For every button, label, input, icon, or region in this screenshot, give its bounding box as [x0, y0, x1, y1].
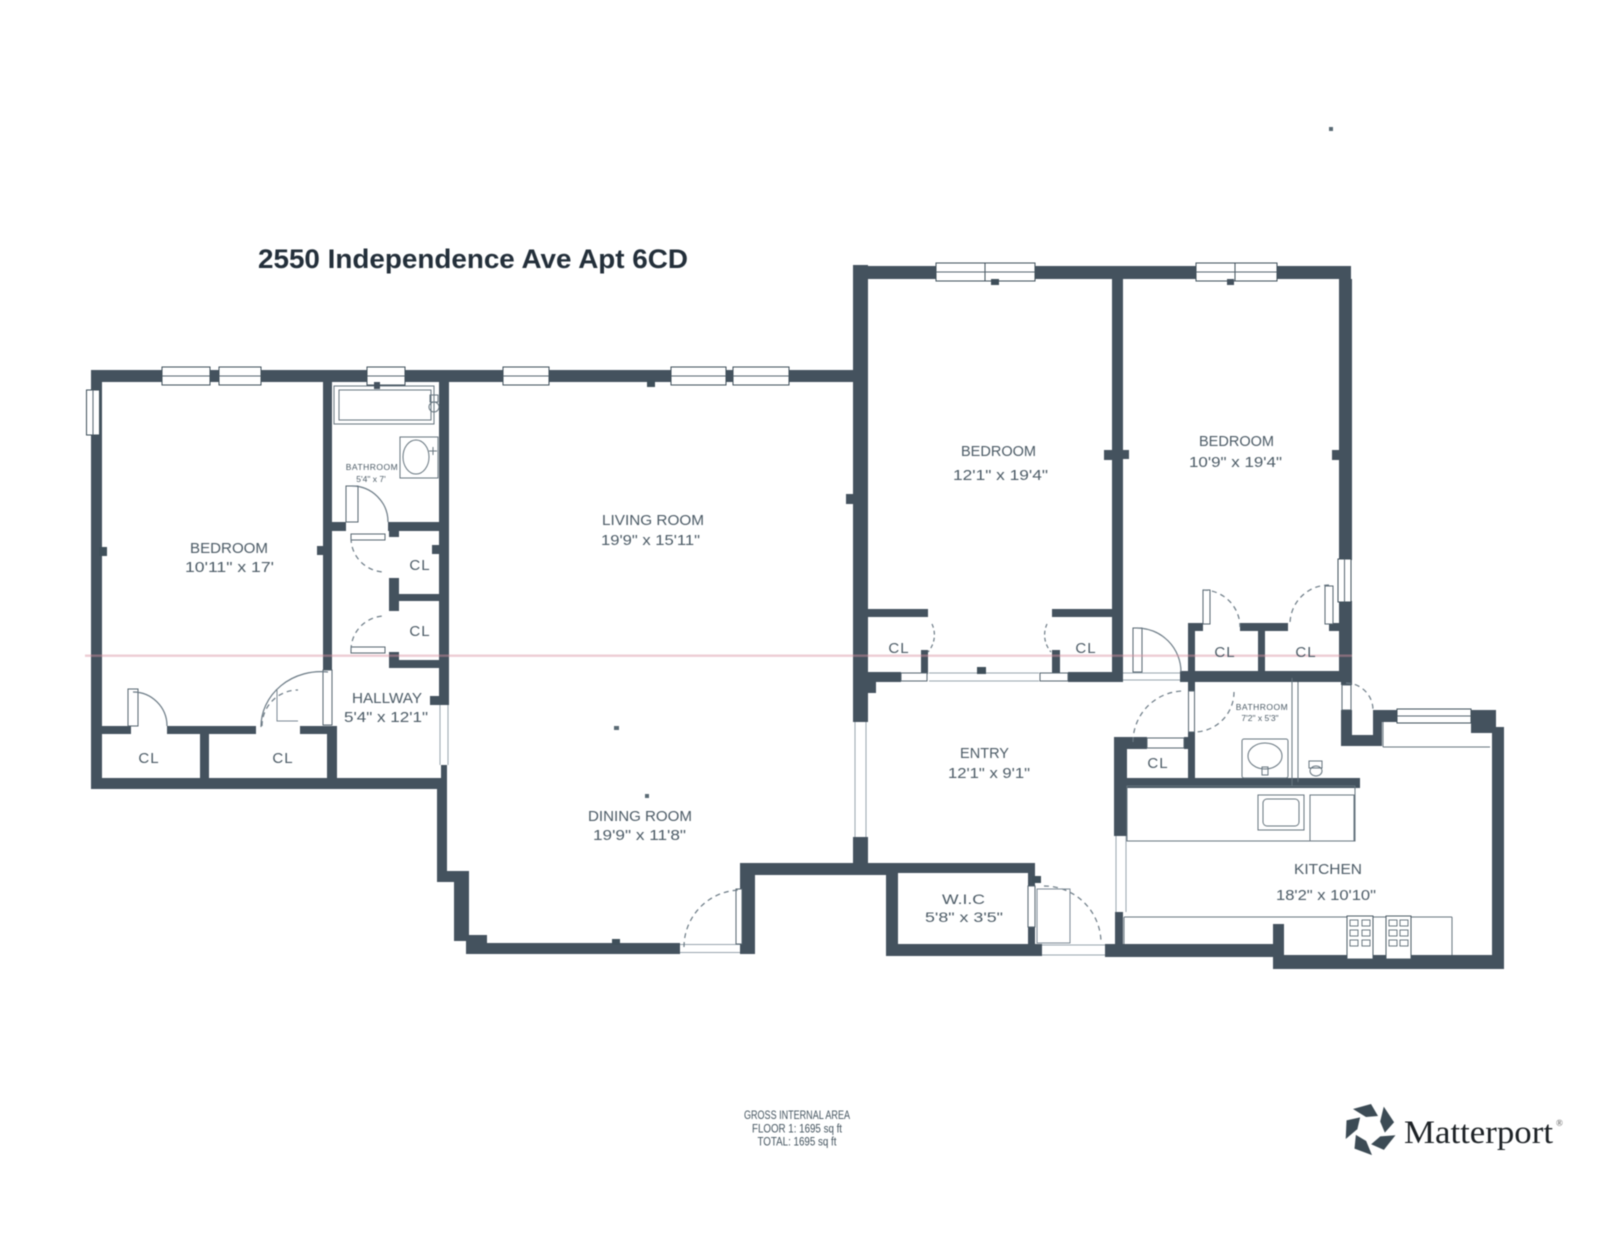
svg-text:CL: CL	[1295, 644, 1316, 661]
svg-text:CL: CL	[1075, 640, 1096, 657]
svg-text:BATHROOM: BATHROOM	[1236, 702, 1288, 712]
svg-text:W.I.C: W.I.C	[942, 891, 985, 907]
svg-text:BEDROOM: BEDROOM	[190, 541, 268, 557]
svg-text:LIVING ROOM: LIVING ROOM	[602, 513, 704, 529]
svg-text:CL: CL	[138, 750, 159, 767]
svg-text:KITCHEN: KITCHEN	[1294, 862, 1362, 878]
svg-text:BATHROOM: BATHROOM	[346, 462, 398, 472]
svg-text:HALLWAY: HALLWAY	[352, 691, 422, 707]
svg-text:5'8" x 3'5": 5'8" x 3'5"	[925, 909, 1003, 925]
svg-text:Matterport: Matterport	[1404, 1115, 1553, 1151]
svg-text:CL: CL	[272, 750, 293, 767]
svg-text:5'4" x 7': 5'4" x 7'	[356, 474, 386, 484]
svg-text:19'9" x 15'11": 19'9" x 15'11"	[601, 533, 700, 549]
svg-text:®: ®	[1556, 1118, 1563, 1128]
svg-text:CL: CL	[409, 623, 430, 640]
svg-text:12'1" x 9'1": 12'1" x 9'1"	[948, 766, 1030, 782]
svg-text:BEDROOM: BEDROOM	[961, 444, 1036, 460]
svg-text:10'11" x 17': 10'11" x 17'	[185, 560, 274, 576]
svg-text:CL: CL	[1214, 644, 1235, 661]
svg-text:DINING ROOM: DINING ROOM	[588, 809, 692, 825]
svg-text:GROSS INTERNAL AREA: GROSS INTERNAL AREA	[744, 1110, 850, 1122]
svg-text:12'1" x 19'4": 12'1" x 19'4"	[953, 468, 1048, 484]
svg-text:5'4" x 12'1": 5'4" x 12'1"	[344, 710, 428, 726]
svg-text:2550 Independence Ave Apt 6CD: 2550 Independence Ave Apt 6CD	[258, 244, 688, 274]
svg-text:TOTAL: 1695 sq ft: TOTAL: 1695 sq ft	[758, 1137, 838, 1149]
svg-text:18'2" x 10'10": 18'2" x 10'10"	[1276, 888, 1376, 904]
svg-text:19'9" x 11'8": 19'9" x 11'8"	[593, 828, 686, 844]
svg-text:7'2" x 5'3": 7'2" x 5'3"	[1241, 713, 1278, 723]
svg-text:CL: CL	[409, 557, 430, 574]
svg-text:FLOOR 1: 1695 sq ft: FLOOR 1: 1695 sq ft	[752, 1124, 843, 1136]
svg-text:CL: CL	[888, 640, 909, 657]
svg-text:ENTRY: ENTRY	[960, 746, 1009, 762]
svg-text:10'9" x 19'4": 10'9" x 19'4"	[1189, 455, 1282, 471]
svg-text:BEDROOM: BEDROOM	[1199, 434, 1274, 450]
svg-text:CL: CL	[1147, 755, 1168, 772]
